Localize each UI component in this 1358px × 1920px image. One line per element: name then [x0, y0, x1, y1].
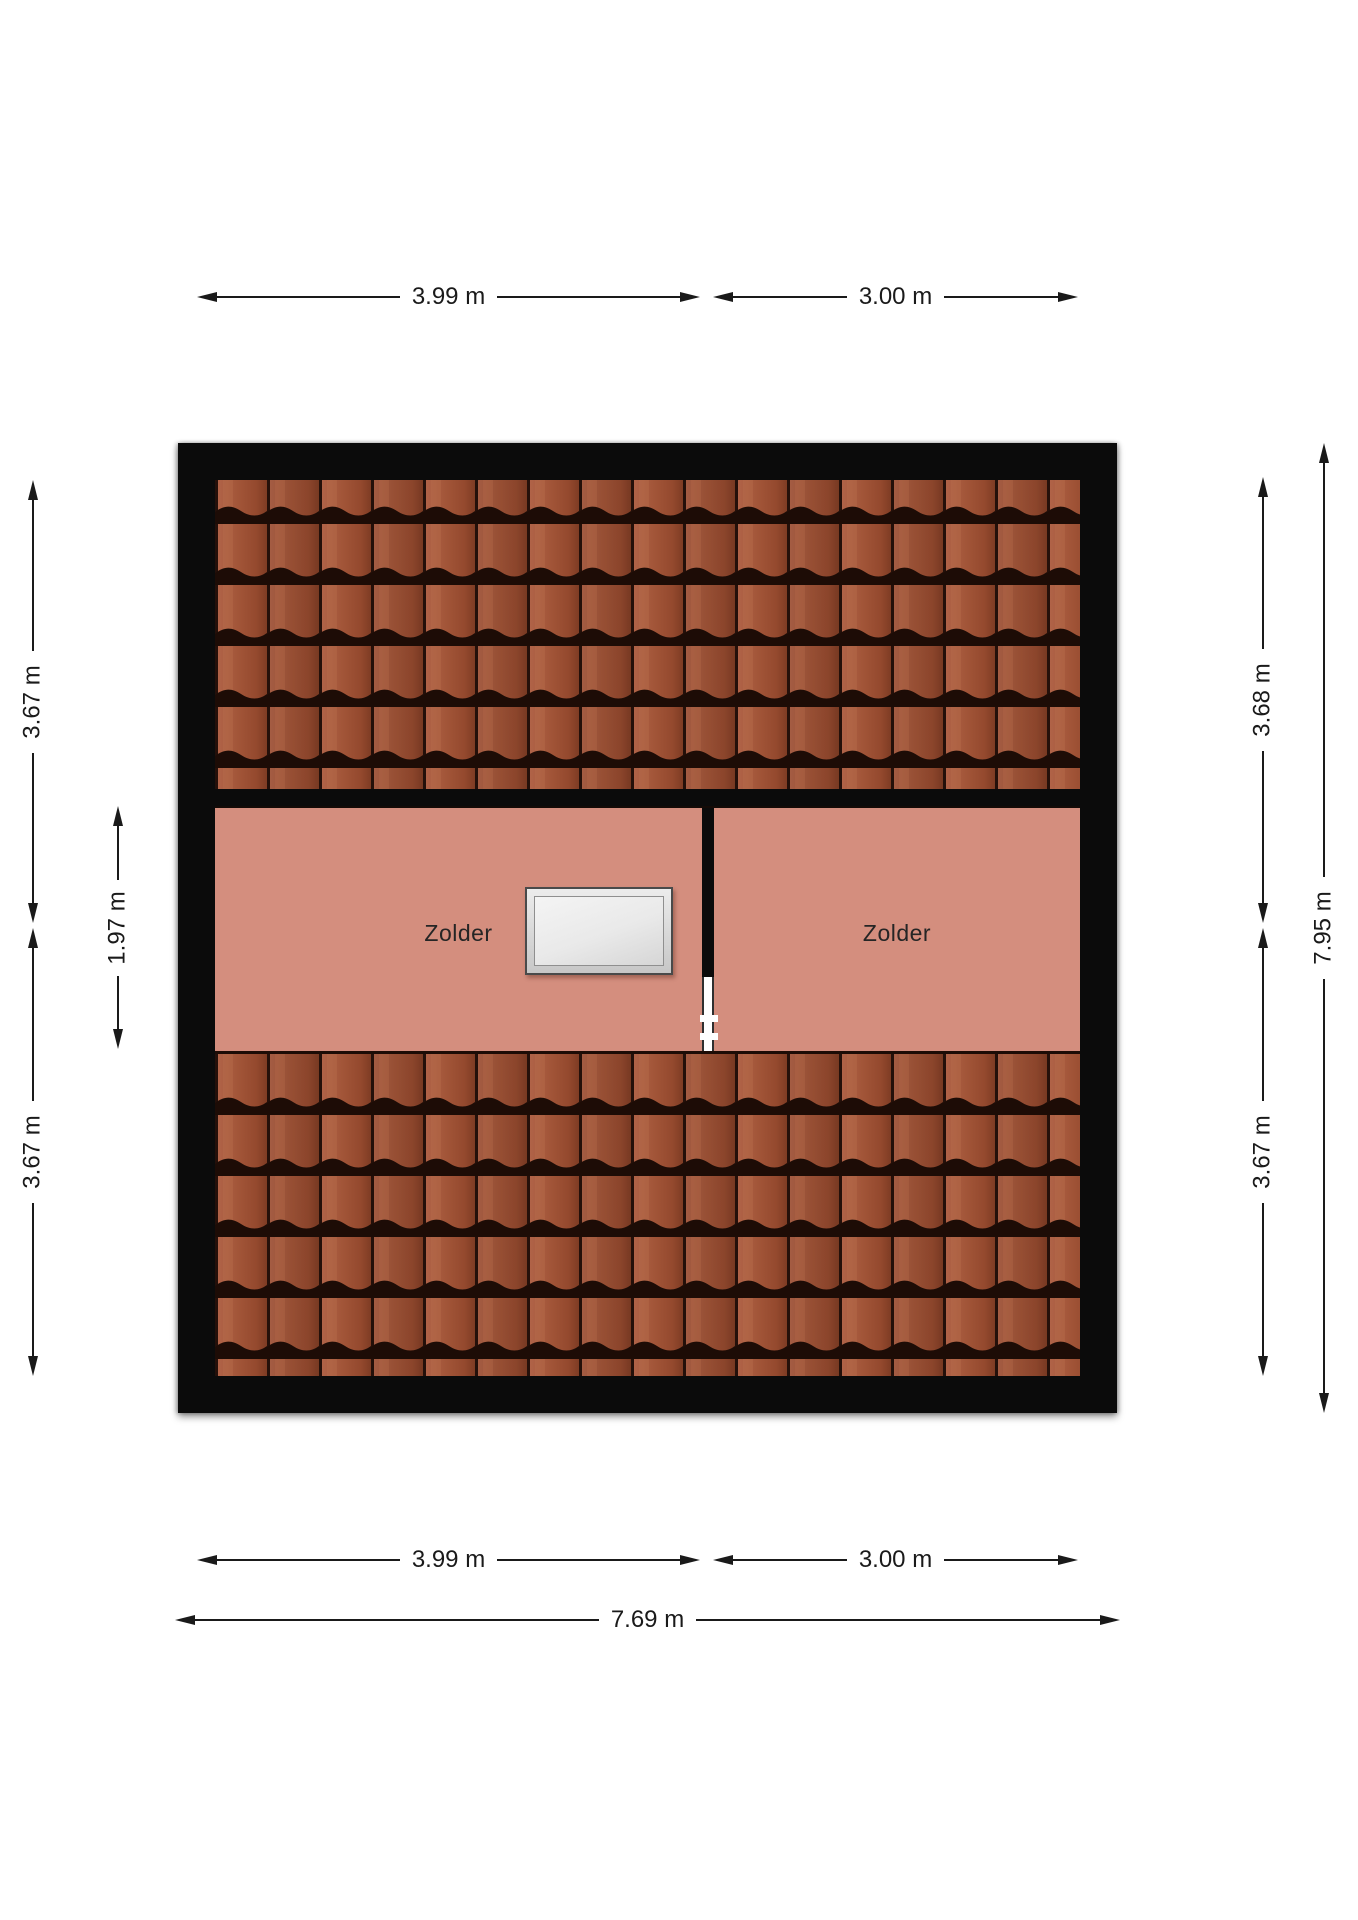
dimension-left-attic-depth: 1.97 m: [104, 806, 132, 1049]
arrow-down-icon: [28, 903, 38, 923]
skylight-window: [525, 887, 673, 975]
dimension-label: 3.99 m: [400, 1546, 497, 1574]
dimension-label: 3.67 m: [19, 1101, 47, 1203]
arrow-right-icon: [1100, 1615, 1120, 1625]
arrow-left-icon: [713, 292, 733, 302]
skylight-frame: [527, 889, 671, 973]
arrow-down-icon: [1319, 1393, 1329, 1413]
dimension-right-upper-depth: 3.68 m: [1249, 477, 1277, 923]
dimension-left-upper-depth: 3.67 m: [19, 480, 47, 923]
dimension-bottom-left-width: 3.99 m: [197, 1546, 700, 1574]
roof-tiles-bottom: [215, 1054, 1080, 1376]
dimension-label: 3.67 m: [19, 651, 47, 753]
attic-floor: Zolder Zolder: [215, 808, 1080, 1051]
arrow-right-icon: [1058, 292, 1078, 302]
arrow-right-icon: [1058, 1555, 1078, 1565]
arrow-up-icon: [1258, 928, 1268, 948]
roof-surface-top: [215, 480, 1080, 808]
arrow-up-icon: [28, 480, 38, 500]
arrow-up-icon: [1258, 477, 1268, 497]
arrow-left-icon: [197, 292, 217, 302]
dimension-label: 3.00 m: [847, 1546, 944, 1574]
roof-tiles-top: [215, 480, 1080, 806]
arrow-right-icon: [680, 1555, 700, 1565]
arrow-down-icon: [1258, 903, 1268, 923]
door-mark: [700, 1015, 718, 1022]
arrow-down-icon: [1258, 1356, 1268, 1376]
arrow-down-icon: [113, 1029, 123, 1049]
interior-wall: [702, 808, 714, 977]
dimension-label: 1.97 m: [104, 880, 132, 976]
dimension-label: 3.99 m: [400, 283, 497, 311]
building-interior: Zolder Zolder: [215, 480, 1080, 1376]
dimension-label: 3.00 m: [847, 283, 944, 311]
arrow-up-icon: [113, 806, 123, 826]
dimension-label: 7.95 m: [1310, 877, 1338, 979]
arrow-left-icon: [197, 1555, 217, 1565]
dimension-top-left-width: 3.99 m: [197, 283, 700, 311]
dimension-bottom-total-width: 7.69 m: [175, 1606, 1120, 1634]
dimension-left-lower-depth: 3.67 m: [19, 928, 47, 1376]
floorplan-page: Zolder Zolder: [0, 0, 1358, 1920]
arrow-right-icon: [680, 292, 700, 302]
door-mark: [700, 1033, 718, 1040]
arrow-up-icon: [28, 928, 38, 948]
dimension-right-lower-depth: 3.67 m: [1249, 928, 1277, 1376]
arrow-down-icon: [28, 1356, 38, 1376]
arrow-left-icon: [713, 1555, 733, 1565]
arrow-left-icon: [175, 1615, 195, 1625]
room-label-zolder-right: Zolder: [714, 808, 1080, 1051]
floorplan: Zolder Zolder: [178, 443, 1117, 1413]
dimension-top-right-width: 3.00 m: [713, 283, 1078, 311]
dimension-right-total-depth: 7.95 m: [1310, 443, 1338, 1413]
dimension-label: 3.68 m: [1249, 649, 1277, 751]
dimension-label: 3.67 m: [1249, 1101, 1277, 1203]
skylight-pane: [534, 896, 664, 966]
dimension-label: 7.69 m: [599, 1606, 696, 1634]
arrow-up-icon: [1319, 443, 1329, 463]
roof-surface-bottom: [215, 1051, 1080, 1376]
door-opening: [702, 977, 714, 1051]
dimension-bottom-right-width: 3.00 m: [713, 1546, 1078, 1574]
